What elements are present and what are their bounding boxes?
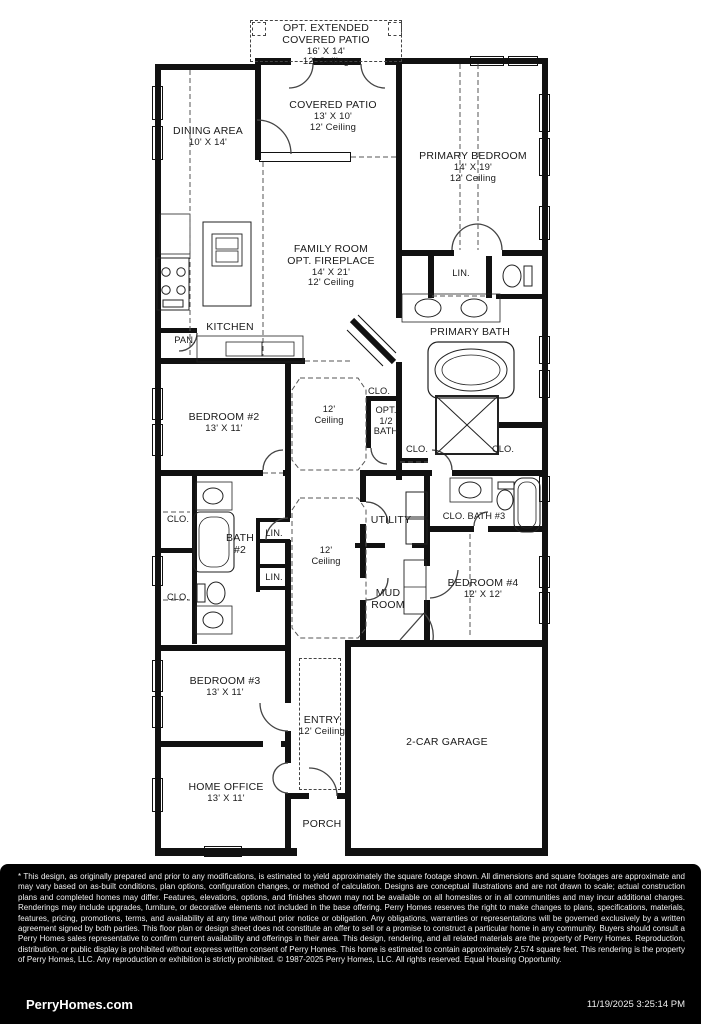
island-sink-icon [212,234,242,266]
room-label-linen-bottom: LIN. [265,572,282,583]
room-label-pantry: PAN. [174,335,195,346]
window [259,152,351,162]
room-label-clo-bath3: CLO. BATH #3 [443,511,506,522]
sink-icon [459,482,481,498]
wall [155,64,261,70]
wall [396,58,548,64]
wall [256,586,290,590]
wall [366,396,398,401]
wall [345,640,351,848]
tub-icon [514,478,540,532]
wall [360,524,366,578]
room-label-kitchen: KITCHEN [206,322,254,334]
sink-icon [203,488,223,504]
wall [424,526,474,532]
room-label-bedroom2: BEDROOM #2 13' X 11' [189,412,260,435]
toilet-icon [503,265,521,287]
room-label-linen-top: LIN. [265,528,282,539]
disclaimer-text: * This design, as originally prepared an… [18,872,685,966]
wall [256,518,290,522]
room-label-covered-patio: COVERED PATIO 13' X 10' 12' Ceiling [289,100,376,133]
wall [285,645,291,703]
wall [155,645,291,651]
wall [285,793,291,852]
label-ceiling-hall-lower: 12' Ceiling [311,545,340,566]
bedroom2-door-arc [263,450,283,470]
wall [360,476,366,502]
room-label-family-room: FAMILY ROOM OPT. FIREPLACE 14' X 21' 12'… [287,244,374,289]
range-icon [157,258,189,310]
room-label-dining: DINING AREA 10' X 14' [173,126,243,149]
wall [428,256,434,298]
room-label-bath2: BATH #2 [226,533,254,557]
wall [396,58,402,318]
room-label-utility: UTILITY [371,515,412,527]
primary-double-door-arc [452,224,478,250]
wall [542,58,548,856]
wall [496,294,548,299]
toilet-icon [207,582,225,604]
half-bath-door-arc [371,448,387,464]
wall [488,526,542,532]
wall [398,458,428,463]
tray-octagon [292,498,366,638]
room-label-clo-hall: CLO. [368,386,390,397]
floorplan-page: OPT. EXTENDED COVERED PATIO 16' X 14' 12… [0,0,701,1024]
mud-bench [404,560,426,614]
vanity-counter [196,482,232,510]
wall [285,540,291,645]
room-label-primary-bath: PRIMARY BATH [430,327,510,339]
timestamp: 11/19/2025 3:25:14 PM [587,999,685,1010]
sink-icon [461,299,487,317]
wall [161,470,263,476]
wall [402,250,454,256]
patio-post [252,22,266,36]
vanity-counter [402,294,500,322]
kitchen-island [203,222,251,306]
patio-dining-door-arc [257,120,291,154]
wall [161,328,197,333]
sink-icon [415,299,441,317]
wall [285,358,291,476]
wall [256,539,290,543]
wall [155,741,263,747]
room-label-opt-half-bath: OPT. 1/2 BATH [374,405,399,437]
wall [285,793,309,799]
shower-icon [436,396,498,454]
label-ceiling-hall-upper: 12' Ceiling [314,404,343,425]
office-double-door-arc [273,763,288,778]
fridge-icon [160,214,190,254]
floor-plan: OPT. EXTENDED COVERED PATIO 16' X 14' 12… [0,0,701,864]
wall [285,731,291,763]
wall [360,600,366,645]
wall [155,358,305,364]
room-label-linen-primary: LIN. [452,268,469,279]
fireplace-icon [347,315,396,366]
wall [345,848,548,856]
vanity-counter [450,478,492,502]
room-label-entry: ENTRY 12' Ceiling [299,715,345,738]
room-label-garage: 2-CAR GARAGE [406,737,488,749]
room-label-clo-half-bath: CLO. [406,444,428,455]
primary-double-door-arc [478,224,502,250]
office-double-door-arc [273,778,288,793]
wall [366,396,371,448]
wall [285,476,291,518]
tub-icon [428,342,514,398]
wall [155,64,161,856]
wall [498,422,548,428]
perryhomes-logo: PerryHomes.com [26,997,133,1012]
room-label-clo-primary: CLO. [492,444,514,455]
wall [255,58,261,160]
wall [424,600,430,645]
wall [486,256,492,298]
wall [424,476,430,566]
primary-closet-door-arc [432,450,452,470]
room-label-mud-room: MUD ROOM [371,588,404,612]
sink-icon [203,612,223,628]
wall [452,470,548,476]
wall [256,518,260,592]
toilet-icon [497,490,513,510]
bedroom3-door-arc [260,703,288,731]
wall [412,543,430,548]
room-label-opt-extended-patio: OPT. EXTENDED COVERED PATIO 16' X 14' 12… [282,23,369,68]
wall [345,640,548,647]
room-label-bedroom4: BEDROOM #4 12' X 12' [448,578,519,601]
room-label-clo-left-upper: CLO. [167,514,189,525]
wall [192,476,197,644]
disclaimer-band: * This design, as originally prepared an… [0,864,701,1024]
garage-door-leaf [400,613,424,640]
room-label-porch: PORCH [303,819,342,831]
wall [256,564,290,568]
wall [155,848,297,856]
room-label-home-office: HOME OFFICE 13' X 11' [188,782,263,805]
room-label-clo-left-lower: CLO. [167,592,189,603]
vanity-counter [196,606,232,634]
room-label-bedroom3: BEDROOM #3 13' X 11' [190,676,261,699]
room-label-primary-bedroom: PRIMARY BEDROOM 14' X 19' 12' Ceiling [419,151,527,184]
patio-post [388,22,402,36]
